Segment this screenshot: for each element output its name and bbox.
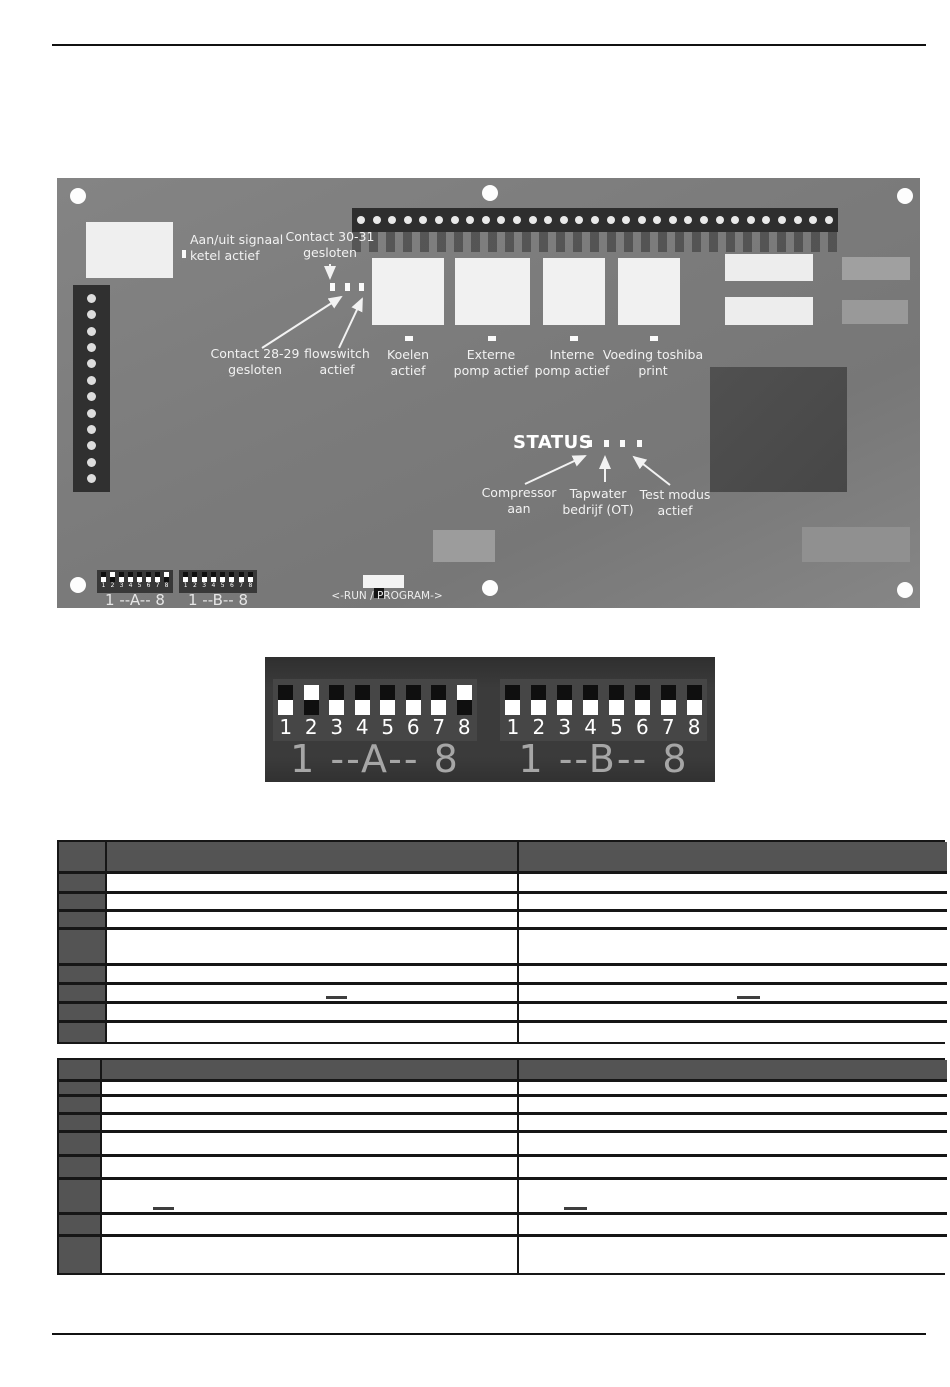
table-row-index-cell (59, 1180, 102, 1215)
table-cell (519, 1082, 947, 1097)
table-row-index-cell (59, 894, 107, 912)
dip-switch-lower-half (355, 700, 370, 715)
dip-switch-number: 1 (102, 582, 106, 589)
dip-switch-number: 7 (662, 716, 675, 738)
relay-koelen (372, 258, 444, 325)
mounting-hole (70, 577, 86, 593)
dip-switch-number: 8 (248, 582, 252, 589)
dip-detail-bank-a: 12345678 (273, 679, 477, 741)
dip-switch-4: 4 (128, 572, 133, 589)
mounting-hole (482, 580, 498, 596)
dip-switch-number: 3 (558, 716, 571, 738)
table-cell (107, 894, 519, 912)
pin-dot (87, 310, 96, 319)
redacted-dash (564, 1207, 587, 1210)
dip-table-b (57, 1058, 945, 1275)
dip-switch-number: 8 (458, 716, 471, 738)
led-contact-28-29 (345, 283, 350, 291)
dip-switch-number: 4 (129, 582, 133, 589)
pin-dot (747, 216, 755, 224)
mounting-hole (897, 188, 913, 204)
dip-detail-a-label: 1 --A-- 8 (273, 739, 477, 779)
dip-switch-lower-half (557, 700, 572, 715)
table-row-index-cell (59, 1115, 102, 1133)
dip-switch-5: 5 (220, 572, 225, 589)
dip-switch-lower-half (583, 700, 598, 715)
dip-switch-7: 7 (431, 685, 446, 738)
table-header-cell (519, 1060, 947, 1082)
dip-switch-upper-half (583, 685, 598, 700)
pin-dot (87, 343, 96, 352)
label-line: Koelen (387, 347, 429, 362)
led-koelen (405, 336, 413, 341)
dip-switch-5: 5 (609, 685, 624, 738)
dip-switch-upper-half (431, 685, 446, 700)
table-cell (519, 1157, 947, 1180)
dip-switch-number: 1 (507, 716, 520, 738)
component-gray-block (433, 530, 495, 562)
dip-switch-lower-half (635, 700, 650, 715)
dip-detail-b-label: 1 --B-- 8 (500, 739, 707, 779)
dip-switch-upper-half (661, 685, 676, 700)
label-voeding: Voeding toshiba print (603, 347, 703, 379)
table-cell (102, 1215, 519, 1237)
dip-switch-7: 7 (239, 572, 244, 589)
label-line: actief (320, 362, 355, 377)
pin-dot (87, 327, 96, 336)
pin-dot (700, 216, 708, 224)
table-header-cell (102, 1060, 519, 1082)
pin-dot (373, 216, 381, 224)
dip-switch-number: 5 (221, 582, 225, 589)
dip-switch-lower-half (505, 700, 520, 715)
dip-switch-lower-half (406, 700, 421, 715)
component-white-block (725, 254, 813, 281)
pin-dot (435, 216, 443, 224)
dip-switch-1: 1 (505, 685, 520, 738)
left-connector (73, 285, 110, 492)
pin-dot (87, 458, 96, 467)
label-line: actief (657, 503, 692, 518)
table-row-index-cell (59, 966, 107, 985)
table-cell (107, 930, 519, 966)
label-line: actief (391, 363, 426, 378)
label-contact-30-31: Contact 30-31 gesloten (286, 229, 375, 261)
pin-dot (419, 216, 427, 224)
table-cell (107, 1023, 519, 1042)
label-line: ketel actief (190, 248, 260, 263)
redacted-dash (153, 1207, 174, 1210)
table-row-index-cell (59, 930, 107, 966)
pin-dot (497, 216, 505, 224)
dip-switch-lower-half (278, 700, 293, 715)
dip-switch-number: 6 (147, 582, 151, 589)
table-cell (519, 1115, 947, 1133)
pin-dot (87, 441, 96, 450)
dip-switch-upper-half (635, 685, 650, 700)
dip-switch-detail-photo: 12345678 12345678 1 --A-- 8 1 --B-- 8 (265, 657, 715, 782)
dip-switch-8: 8 (687, 685, 702, 738)
component-gray-block (802, 527, 910, 562)
label-line: bedrijf (OT) (562, 502, 633, 517)
pin-dot (87, 359, 96, 368)
label-koelen: Koelen actief (387, 347, 429, 379)
pin-dot (560, 216, 568, 224)
pin-dot (825, 216, 833, 224)
table-cell (102, 1157, 519, 1180)
label-line: pomp actief (454, 363, 529, 378)
dip-switch-1: 1 (183, 572, 188, 589)
dip-switch-lower-half (661, 700, 676, 715)
dip-switch-4: 4 (211, 572, 216, 589)
label-line: Externe (467, 347, 515, 362)
table-cell (519, 894, 947, 912)
pin-dot (451, 216, 459, 224)
microcontroller-chip (710, 367, 847, 492)
led-interne-pomp (570, 336, 578, 341)
table-row-index-cell (59, 1082, 102, 1097)
led-aan-uit (182, 250, 186, 258)
table-header-cell (519, 842, 947, 874)
dip-switch-number: 4 (356, 716, 369, 738)
table-cell (107, 966, 519, 985)
component-gray-block (842, 300, 908, 324)
dip-switch-4: 4 (355, 685, 370, 738)
table-cell (519, 1097, 947, 1115)
table-row-index-cell (59, 1215, 102, 1237)
label-tapwater: Tapwater bedrijf (OT) (562, 486, 633, 518)
table-row-index-cell (59, 1237, 102, 1273)
run-program-switch (363, 575, 404, 588)
bottom-rule (52, 1333, 926, 1335)
table-cell (107, 1004, 519, 1023)
dip-switch-upper-half (531, 685, 546, 700)
dip-switch-number: 2 (532, 716, 545, 738)
pin-dot (388, 216, 396, 224)
label-line: Contact 30-31 (286, 229, 375, 244)
dip-switch-upper-half (329, 685, 344, 700)
table-row-index-cell (59, 1133, 102, 1157)
table-cell (519, 1215, 947, 1237)
relay-interne-pomp (543, 258, 605, 325)
pin-dot (716, 216, 724, 224)
label-line: pomp actief (535, 363, 610, 378)
pin-dot (607, 216, 615, 224)
dip-switch-2: 2 (110, 572, 115, 589)
label-test-modus: Test modus actief (640, 487, 711, 519)
dip-switch-upper-half (609, 685, 624, 700)
pin-dot (778, 216, 786, 224)
table-cell (519, 1180, 947, 1215)
label-line: Test modus (640, 487, 711, 502)
dip-switch-lower-half (329, 700, 344, 715)
dip-switch-number: 2 (193, 582, 197, 589)
table-cell (519, 985, 947, 1004)
dip-switch-number: 1 (184, 582, 188, 589)
dip-switch-2: 2 (531, 685, 546, 738)
dip-switch-6: 6 (406, 685, 421, 738)
dip-switch-upper-half (406, 685, 421, 700)
dip-switch-number: 2 (305, 716, 318, 738)
table-row-index-cell (59, 1004, 107, 1023)
label-interne-pomp: Interne pomp actief (535, 347, 610, 379)
label-line: gesloten (228, 362, 282, 377)
dip-switch-lower-half (687, 700, 702, 715)
dip-switch-upper-half (557, 685, 572, 700)
mounting-hole (70, 188, 86, 204)
table-cell (519, 966, 947, 985)
led-flowswitch (359, 283, 364, 291)
label-line: Contact 28-29 (211, 346, 300, 361)
table-cell (519, 874, 947, 894)
dip-switch-8: 8 (164, 572, 169, 589)
dip-switch-upper-half (380, 685, 395, 700)
dip-switch-lower-half (431, 700, 446, 715)
table-header-cell (107, 842, 519, 874)
led-status-2 (604, 440, 609, 447)
table-cell (519, 1023, 947, 1042)
dip-switch-upper-half (687, 685, 702, 700)
label-run-program: <-RUN / PROGRAM-> (331, 590, 442, 602)
dip-switch-number: 4 (584, 716, 597, 738)
table-cell (102, 1082, 519, 1097)
pin-dot (809, 216, 817, 224)
dip-switch-3: 3 (329, 685, 344, 738)
dip-switch-bank-a: 12345678 (97, 570, 173, 593)
relay-externe-pomp (455, 258, 530, 325)
label-line: print (638, 363, 667, 378)
dip-switch-8: 8 (248, 572, 253, 589)
table-cell (102, 1115, 519, 1133)
dip-switch-number: 8 (688, 716, 701, 738)
pin-dot (762, 216, 770, 224)
table-cell (107, 912, 519, 930)
mounting-hole (482, 185, 498, 201)
dip-switch-7: 7 (661, 685, 676, 738)
table-cell (107, 874, 519, 894)
table-header-cell (59, 1060, 102, 1082)
redacted-dash (737, 996, 760, 999)
mounting-hole (897, 582, 913, 598)
dip-switch-5: 5 (380, 685, 395, 738)
dip-switch-upper-half (505, 685, 520, 700)
pcb-photo: Aan/uit signaal ketel actief Contact 30-… (57, 178, 920, 608)
label-contact-28-29: Contact 28-29 gesloten (211, 346, 300, 378)
label-status: STATUS (513, 432, 592, 453)
led-status-4 (637, 440, 642, 447)
dip-table-a (57, 840, 945, 1044)
pin-header-connector (352, 208, 838, 232)
dip-switch-lower-half (531, 700, 546, 715)
dip-switch-number: 7 (432, 716, 445, 738)
pin-dot (513, 216, 521, 224)
led-contact-30-31 (330, 283, 335, 291)
pin-dot (87, 392, 96, 401)
pin-dot (638, 216, 646, 224)
table-cell (107, 985, 519, 1004)
pin-dot (482, 216, 490, 224)
pin-dot (529, 216, 537, 224)
pin-dot (466, 216, 474, 224)
led-status-3 (620, 440, 625, 447)
dip-switch-number: 6 (407, 716, 420, 738)
led-externe-pomp (488, 336, 496, 341)
pin-dot (684, 216, 692, 224)
pin-dot (87, 474, 96, 483)
dip-switch-1: 1 (278, 685, 293, 738)
label-line: flowswitch (304, 346, 370, 361)
dip-switch-number: 2 (111, 582, 115, 589)
dip-switch-lower-half (304, 700, 319, 715)
dip-switch-7: 7 (155, 572, 160, 589)
dip-switch-2: 2 (192, 572, 197, 589)
dip-switch-upper-half (304, 685, 319, 700)
label-compressor: Compressor aan (482, 485, 557, 517)
dip-switch-bank-b: 12345678 (179, 570, 257, 593)
label-flowswitch: flowswitch actief (304, 346, 370, 378)
pin-dot (87, 376, 96, 385)
dip-switch-2: 2 (304, 685, 319, 738)
dip-bank-a-label: 1 --A-- 8 (105, 591, 165, 609)
dip-switch-3: 3 (119, 572, 124, 589)
dip-switch-4: 4 (583, 685, 598, 738)
label-line: aan (507, 501, 530, 516)
table-row-index-cell (59, 1097, 102, 1115)
label-externe-pomp: Externe pomp actief (454, 347, 529, 379)
top-rule (52, 44, 926, 46)
manual-page: Aan/uit signaal ketel actief Contact 30-… (0, 0, 950, 1387)
dip-switch-number: 7 (239, 582, 243, 589)
dip-switch-6: 6 (635, 685, 650, 738)
table-row-index-cell (59, 912, 107, 930)
pin-dot (669, 216, 677, 224)
table-cell (102, 1133, 519, 1157)
pin-dot (794, 216, 802, 224)
dip-bank-b-label: 1 --B-- 8 (188, 591, 248, 609)
dip-switch-number: 8 (165, 582, 169, 589)
label-line: Voeding toshiba (603, 347, 703, 362)
dip-switch-number: 6 (636, 716, 649, 738)
dip-switch-number: 4 (211, 582, 215, 589)
label-line: Interne (550, 347, 595, 362)
dip-switch-5: 5 (137, 572, 142, 589)
table-row-index-cell (59, 1023, 107, 1042)
table-cell (519, 1004, 947, 1023)
component-white-block (725, 297, 813, 325)
table-cell (519, 1133, 947, 1157)
pin-dot (544, 216, 552, 224)
dip-switch-number: 1 (279, 716, 292, 738)
table-row-index-cell (59, 985, 107, 1004)
pin-dot (622, 216, 630, 224)
dip-detail-bank-b: 12345678 (500, 679, 707, 741)
pin-dot (87, 294, 96, 303)
dip-switch-6: 6 (229, 572, 234, 589)
led-voeding (650, 336, 658, 341)
label-line: Tapwater (570, 486, 627, 501)
transformer-block (86, 222, 173, 278)
pin-dot (87, 425, 96, 434)
pin-dot (87, 409, 96, 418)
dip-switch-number: 6 (230, 582, 234, 589)
pin-dot (357, 216, 365, 224)
label-line: gesloten (303, 245, 357, 260)
dip-switch-lower-half (457, 700, 472, 715)
table-cell (102, 1237, 519, 1273)
table-header-cell (59, 842, 107, 874)
label-aan-uit: Aan/uit signaal ketel actief (190, 232, 283, 264)
pin-dot (404, 216, 412, 224)
table-cell (102, 1180, 519, 1215)
dip-switch-number: 3 (202, 582, 206, 589)
redacted-dash (326, 996, 347, 999)
dip-switch-3: 3 (557, 685, 572, 738)
dip-switch-number: 7 (156, 582, 160, 589)
label-line: Aan/uit signaal (190, 232, 283, 247)
table-cell (519, 1237, 947, 1273)
dip-switch-upper-half (278, 685, 293, 700)
table-row-index-cell (59, 1157, 102, 1180)
table-cell (519, 912, 947, 930)
relay-voeding (618, 258, 680, 325)
label-line: Compressor (482, 485, 557, 500)
table-row-index-cell (59, 874, 107, 894)
pin-dot (731, 216, 739, 224)
dip-switch-number: 5 (138, 582, 142, 589)
dip-switch-number: 3 (120, 582, 124, 589)
pin-dot (653, 216, 661, 224)
dip-switch-upper-half (457, 685, 472, 700)
dip-switch-number: 3 (330, 716, 343, 738)
dip-switch-lower-half (609, 700, 624, 715)
pin-header-shadow (352, 232, 838, 252)
dip-switch-lower-half (380, 700, 395, 715)
dip-switch-8: 8 (457, 685, 472, 738)
table-cell (519, 930, 947, 966)
pin-dot (575, 216, 583, 224)
dip-switch-3: 3 (202, 572, 207, 589)
dip-switch-number: 5 (610, 716, 623, 738)
component-gray-block (842, 257, 910, 280)
table-cell (102, 1097, 519, 1115)
dip-switch-6: 6 (146, 572, 151, 589)
dip-switch-1: 1 (101, 572, 106, 589)
dip-switch-number: 5 (381, 716, 394, 738)
dip-switch-upper-half (355, 685, 370, 700)
pin-dot (591, 216, 599, 224)
